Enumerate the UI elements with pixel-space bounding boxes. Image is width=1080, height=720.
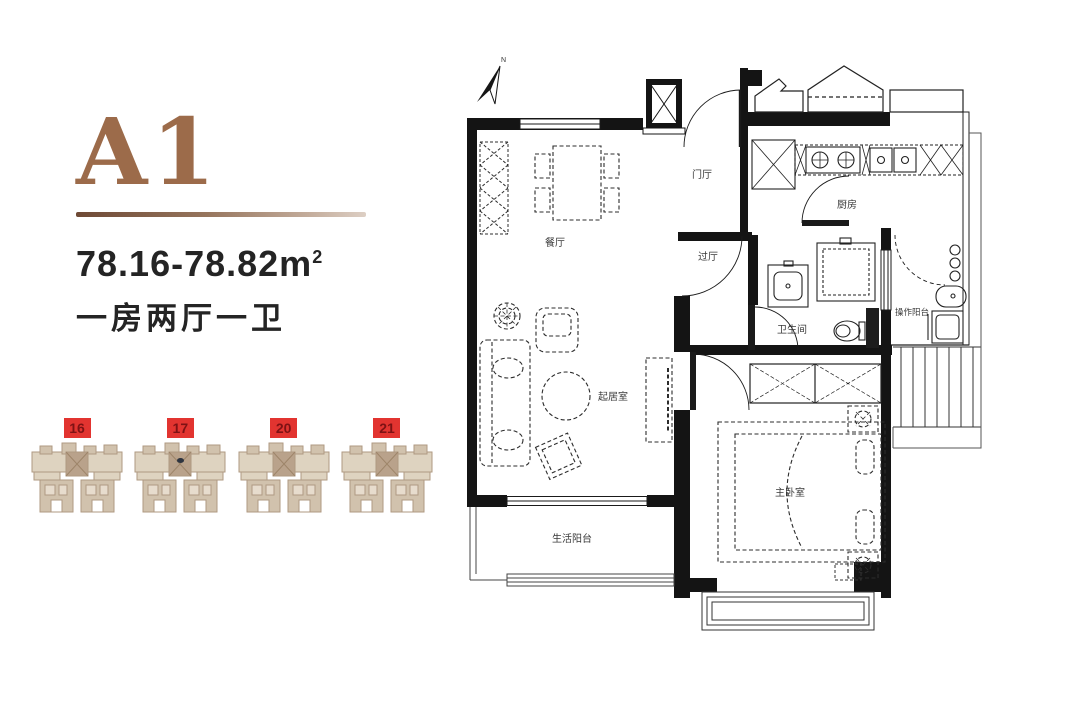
living-furniture: [480, 303, 672, 479]
room-label-hallway: 过厅: [698, 250, 718, 263]
right-railing: [893, 347, 981, 427]
room-label-kitchen: 厨房: [837, 198, 857, 211]
doors: [682, 90, 945, 410]
building-footprint-icon: [340, 440, 434, 516]
building-number-badge: 20: [270, 418, 297, 438]
elevator-shaft: [643, 82, 685, 134]
building-footprint-icon: [133, 440, 227, 516]
room-label-dining: 餐厅: [545, 236, 565, 249]
dining-furniture: [535, 146, 619, 220]
unit-name: A1: [76, 106, 406, 198]
life-balcony-structure: [470, 507, 674, 586]
room-label-utility-balcony: 操作阳台: [895, 307, 929, 317]
utility-fixtures: [928, 245, 966, 343]
unit-layout: 一房两厅一卫: [76, 293, 406, 338]
site-plan: 16 17 20 21: [30, 418, 434, 516]
room-label-master-bedroom: 主卧室: [775, 486, 805, 499]
unit-area: 78.16-78.82m2: [76, 243, 406, 285]
building-footprint-icon: [30, 440, 124, 516]
building-footprint-icon: [237, 440, 331, 516]
wardrobe: [750, 364, 881, 403]
site-building[interactable]: 17: [133, 418, 227, 516]
site-building[interactable]: 16: [30, 418, 124, 516]
site-building[interactable]: 20: [237, 418, 331, 516]
kitchen-flue-vents: [755, 66, 963, 112]
unit-info-panel: A1 78.16-78.82m2 一房两厅一卫: [76, 106, 406, 338]
room-label-living: 起居室: [598, 390, 628, 403]
room-label-foyer: 门厅: [692, 168, 712, 181]
building-number-badge: 17: [167, 418, 194, 438]
divider-line: [76, 212, 366, 217]
site-building[interactable]: 21: [340, 418, 434, 516]
kitchen-counter: [752, 140, 963, 189]
room-label-life-balcony: 生活阳台: [552, 532, 592, 545]
floor-plan: N: [450, 50, 990, 650]
room-labels: 餐厅 门厅 厨房 过厅 卫生间 操作阳台 起居室 主卧室 生活阳台: [545, 168, 929, 545]
bay-window: [702, 564, 874, 630]
compass-label: N: [501, 57, 506, 64]
building-number-badge: 21: [373, 418, 400, 438]
north-arrow-icon: N: [477, 57, 506, 104]
room-label-bathroom: 卫生间: [777, 323, 807, 336]
building-number-badge: 16: [64, 418, 91, 438]
kitchen-right-wall: [963, 112, 969, 345]
dining-cabinet: [480, 142, 508, 234]
